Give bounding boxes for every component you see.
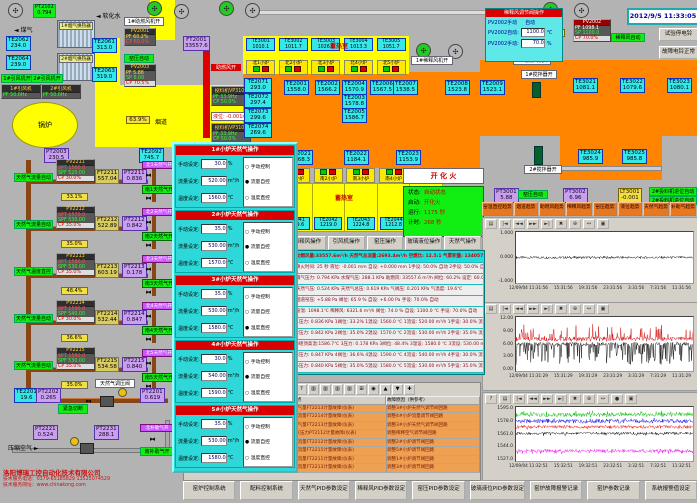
unit: % bbox=[228, 291, 233, 297]
pv2002-controller[interactable]: PV2002 PF 1098.1 SP 1100.0 CP 70.0% bbox=[573, 19, 611, 42]
emergency-cutoff-button[interactable]: 紧急切断 bbox=[58, 404, 88, 414]
operation-button[interactable]: 玻璃液位操作 bbox=[405, 236, 442, 250]
val: 985.9 bbox=[580, 156, 601, 162]
north-chamber: TE30011010.1 北1小炉 bbox=[245, 36, 277, 74]
val: 313.0 bbox=[94, 45, 115, 51]
chamber-te-indicator: TE20421219.0 bbox=[314, 217, 342, 230]
gas-loop-row: 天然气流量自动 PV2215 SPT 1580.0 SPF 530.00 CP … bbox=[0, 346, 172, 393]
nav-button[interactable]: 窑炉故障报警记录 bbox=[530, 481, 582, 500]
x-tick: 7:31:56 bbox=[650, 285, 666, 293]
te2062-indicator: TE2062234.0 bbox=[6, 36, 31, 51]
north-gas-valve-status: 北5天然气开 bbox=[142, 349, 176, 357]
unit: ℃ bbox=[228, 390, 234, 396]
nav-button[interactable]: 天然气PID参数设定 bbox=[298, 481, 350, 500]
radio-manual-control[interactable]: ○ 手动控制 bbox=[245, 358, 291, 365]
fan1-pf: PF 50.0Hz bbox=[3, 93, 27, 98]
flue-label: 烟道 bbox=[155, 117, 167, 126]
red-light bbox=[262, 66, 269, 72]
radio-flow-auto[interactable]: ○ 流量自控 bbox=[245, 308, 291, 315]
chart-toolbar-button[interactable]: ◄◄ bbox=[513, 219, 525, 229]
temp-set-label: 温度设定: bbox=[178, 195, 200, 202]
auto-sp-label: PV2002自动: bbox=[488, 29, 519, 36]
loop-controller-panel[interactable]: PV2212 SPT 1570.0 SPF 530.00 CP 35.0% bbox=[56, 206, 95, 229]
manual-set-label: 手动设定: bbox=[178, 421, 200, 428]
val: 1586.7 bbox=[344, 115, 365, 121]
radio-temp-direct[interactable]: ○ 温度直控 bbox=[245, 389, 291, 396]
chart-toolbar-button[interactable]: |◄ bbox=[499, 219, 511, 229]
trend-button[interactable]: 液位趋势 bbox=[618, 202, 642, 216]
flow-set-label: 流量设定: bbox=[178, 438, 200, 445]
fan-icon: ✣ bbox=[174, 4, 189, 19]
y-axis-ticks: 1595.01578.01561.01544.01527.0 bbox=[486, 406, 515, 462]
val: 0.842 bbox=[124, 223, 145, 229]
burner-box[interactable]: 南2小炉 bbox=[314, 168, 343, 183]
nav-button[interactable]: 稀释风PID参数设定 bbox=[355, 481, 407, 500]
red-light bbox=[395, 169, 402, 175]
manual-set-input[interactable]: 30.0 bbox=[201, 354, 227, 364]
operation-button[interactable]: 引风机操作 bbox=[328, 236, 365, 250]
te2008-indicator: TE20081523.8 bbox=[445, 80, 470, 95]
loop-controller-panel[interactable]: PV2215 SPT 1580.0 SPF 530.00 CP 35.0% bbox=[56, 347, 95, 370]
radio-manual-control[interactable]: ○ 手动控制 bbox=[245, 293, 291, 300]
log-toolbar-button[interactable]: ▼ bbox=[392, 384, 403, 395]
company-website: 技术服务网址：www.chinakong.com bbox=[3, 483, 143, 489]
south-aux-gas-valve-status: 南补助气开 bbox=[140, 447, 174, 456]
trend-button[interactable]: 窑压趋势 bbox=[593, 202, 617, 216]
val: 1081.1 bbox=[575, 85, 596, 91]
unit: % bbox=[547, 41, 552, 47]
radio-manual-control[interactable]: ○ 手动控制 bbox=[245, 423, 291, 430]
val: 1558.0 bbox=[286, 87, 307, 93]
chamber-te-indicator: TE30011010.1 bbox=[246, 38, 275, 51]
unit: m³/h bbox=[228, 308, 240, 314]
burner-status-lights bbox=[345, 66, 372, 74]
valve-icon[interactable]: ▸◂ bbox=[146, 266, 149, 273]
furnace-working-end bbox=[480, 60, 697, 136]
fan1-open-status: 1#引风机开 bbox=[1, 74, 33, 83]
chart-toolbar-button[interactable]: ►► bbox=[527, 304, 539, 314]
flow-set-input[interactable]: 530.00 bbox=[201, 436, 227, 446]
chart-toolbar-button[interactable]: ►| bbox=[541, 219, 553, 229]
te2074-indicator: TE2074269.6 bbox=[244, 123, 272, 138]
radio-icon: ● bbox=[245, 180, 249, 185]
x-axis-ticks: 12/09/04 11:31:5615:31:5619:31:5623:31:5… bbox=[509, 285, 691, 293]
popup-section-body: 手动设定:35.0% 流量设定:530.00m³/h 温度设定:1580.0℃ … bbox=[176, 415, 294, 467]
valve-icon[interactable]: ▸◂ bbox=[150, 436, 153, 443]
unit: % bbox=[228, 161, 233, 167]
temp-set-input[interactable]: 1560.0 bbox=[201, 193, 227, 203]
val: 603.19 bbox=[97, 270, 117, 276]
chart-toolbar-button[interactable]: ✖ bbox=[555, 219, 567, 229]
val: -0.001 bbox=[620, 195, 640, 201]
chart-toolbar-button[interactable]: ↔ bbox=[583, 219, 595, 229]
y-tick: 0.00 bbox=[486, 367, 513, 372]
manual-set-label: 手动设定: bbox=[178, 161, 200, 168]
burner-label: 南2小炉 bbox=[315, 177, 342, 182]
loop-valve-position: 36.6% bbox=[61, 334, 88, 342]
trend-button[interactable]: 助燃风趋势 bbox=[539, 202, 565, 216]
pv2003-controller[interactable]: PV2003PF 5.88SP 6.00CP 70.5% bbox=[124, 64, 156, 87]
val: 19.6 bbox=[16, 395, 37, 401]
south-regenerator-label: 蓄热室 bbox=[335, 193, 353, 202]
flue-damper-position: 63.9% bbox=[126, 116, 150, 124]
status-value: 1175 秒 bbox=[424, 208, 445, 218]
val: 234.0 bbox=[8, 43, 29, 49]
burner-box[interactable]: 北4小炉 bbox=[344, 60, 373, 75]
burner-status-lights bbox=[247, 66, 274, 74]
radio-manual-control[interactable]: ○ 手动控制 bbox=[245, 228, 291, 235]
radio-icon: ○ bbox=[245, 230, 249, 235]
flow-set-input[interactable]: 520.00 bbox=[201, 176, 227, 186]
gas-operation-popup: 1#小炉天然气操作 手动设定:30.0% 流量设定:520.00m³/h 温度设… bbox=[172, 142, 298, 473]
boiler-label: 锅炉 bbox=[38, 120, 52, 130]
row-reason: 调整稀释空气调节阀回路 bbox=[387, 430, 480, 439]
pt2221-indicator: PT22210.524 bbox=[33, 425, 58, 440]
gas-loop-row: 天然气温度直控 PV2213 SPT 1580.0 SPF 530.00 CP … bbox=[0, 252, 172, 299]
x-axis-ticks: 12/09/04 11:31:2915:31:2919:31:2923:31:2… bbox=[509, 373, 691, 381]
temp-set-input[interactable]: 1590.0 bbox=[201, 388, 227, 398]
val: 1079.6 bbox=[622, 85, 643, 91]
nav-button[interactable]: 配料控制系统 bbox=[240, 481, 292, 500]
val: 532.44 bbox=[97, 317, 117, 323]
radio-icon: ○ bbox=[245, 425, 249, 430]
pt2202-indicator: PT22020.265 bbox=[36, 388, 61, 403]
chart-toolbar-button[interactable]: ▣ bbox=[625, 394, 637, 404]
trend-button[interactable]: 窑温直控趋势 bbox=[482, 202, 513, 216]
comb-air-open-label: 助燃风开 bbox=[211, 64, 241, 71]
radio-icon: ○ bbox=[245, 165, 249, 170]
red-light bbox=[327, 66, 334, 72]
x-tick: 23:31:56 bbox=[603, 285, 622, 293]
trend-button[interactable]: 稀释风趋势 bbox=[566, 202, 592, 216]
val: 1567.5 bbox=[372, 87, 393, 93]
green-light bbox=[285, 66, 292, 72]
chart-toolbar-button[interactable]: ►► bbox=[527, 219, 539, 229]
green-light bbox=[318, 66, 325, 72]
loop-flow-indicator: FT2214532.44 bbox=[95, 310, 119, 325]
pt3002-indicator: PT30026.96 bbox=[563, 188, 588, 203]
loop-auto-mode-label: 天然气流量自动 bbox=[14, 220, 53, 229]
val: 299.6 bbox=[246, 115, 270, 121]
scada-furnace-screen: 锅炉 ✣ ✣ ✣ ✣ ✣ ✣ ✣ ✣ ✣ ◄ 煤气 PT21020.794 ◄ … bbox=[0, 0, 697, 503]
manual-set-input[interactable]: 35.0 bbox=[201, 289, 227, 299]
chart-toolbar-button[interactable]: ⊕ bbox=[583, 394, 595, 404]
manual-set-input[interactable]: 30.0 bbox=[201, 159, 227, 169]
chart-toolbar-button[interactable]: ⊕ bbox=[569, 219, 581, 229]
log-toolbar-button[interactable]: ▥ bbox=[332, 384, 343, 395]
radio-icon: ○ bbox=[245, 391, 249, 396]
log-toolbar-button[interactable]: ✚ bbox=[404, 384, 415, 395]
temp-set-input[interactable]: 1570.0 bbox=[201, 258, 227, 268]
col-fault-header[interactable]: 故障点 bbox=[287, 396, 386, 405]
control-mode-radio-group: ○ 手动控制 ● 流量自控 ○ 温度直控 bbox=[243, 157, 293, 207]
company-name: 洛阳博瑞工控自动化技术有限公司 bbox=[3, 469, 143, 477]
trend-buttons-row: 窑温直控趋势烟道趋势助燃风趋势稀释风趋势窑压趋势液位趋势天然气趋势补助气趋势 bbox=[482, 202, 696, 216]
burner-box[interactable]: 北2小炉 bbox=[279, 60, 308, 75]
te2004-indicator: TE20041570.9 bbox=[342, 80, 367, 95]
chart-toolbar-button[interactable]: ►► bbox=[541, 394, 553, 404]
nav-button[interactable]: 窑炉控制系统 bbox=[183, 481, 235, 500]
flow-set-label: 流量设定: bbox=[178, 308, 200, 315]
te2001-indicator: TE20011558.0 bbox=[284, 80, 309, 95]
burner-box[interactable]: 北3小炉 bbox=[311, 60, 340, 75]
dilution-auto-label: 稀释风自动 bbox=[611, 33, 645, 42]
dilution-fan1-open-label: 1#稀释风机开 bbox=[411, 56, 453, 65]
company-info: 洛阳博瑞工控自动化技术有限公司 技术服务电话：0379-65185829 135… bbox=[3, 469, 143, 489]
te2007-indicator: TE20071538.5 bbox=[393, 80, 418, 95]
fan2-name: 2#引风机 bbox=[42, 85, 80, 93]
chart-toolbar-button[interactable]: ▤ bbox=[485, 304, 497, 314]
val: 1523.8 bbox=[447, 87, 468, 93]
valve-icon[interactable]: ▸◂ bbox=[146, 195, 149, 202]
row-reason: 调整5#小炉调节阀回路 bbox=[387, 447, 480, 456]
manual-sp-input[interactable]: 70.0 bbox=[521, 39, 545, 48]
north-gas-valve-status: 北4天然气开 bbox=[142, 302, 176, 310]
nav-button[interactable]: 玻璃液位PID参数设定 bbox=[470, 481, 525, 500]
radio-icon: ● bbox=[245, 440, 249, 445]
green-light bbox=[253, 66, 260, 72]
green-light bbox=[386, 169, 393, 175]
trend-button[interactable]: 烟道趋势 bbox=[514, 202, 538, 216]
x-tick: 3:32:51 bbox=[628, 463, 644, 471]
burner-box[interactable]: 南3小炉 bbox=[346, 168, 375, 183]
temp-set-input[interactable]: 1580.0 bbox=[201, 453, 227, 463]
status-key: 启动: bbox=[408, 198, 421, 208]
chart-toolbar-button[interactable]: ►| bbox=[555, 394, 567, 404]
loop-valve-position: 35.0% bbox=[61, 381, 88, 389]
x-tick: 7:31:29 bbox=[650, 373, 666, 381]
kiln-pressure-auto-label2: 窑压自动 bbox=[518, 190, 548, 199]
te2061-indicator: TE2061313.0 bbox=[92, 38, 117, 53]
fan2-drive-panel[interactable]: 2#引风机PF 50.0Hz bbox=[41, 84, 81, 99]
chamber-block: TE20421219.0 bbox=[312, 183, 346, 232]
fault-bell-button[interactable]: 故障电铃正常 bbox=[659, 46, 697, 59]
burner-status-lights bbox=[347, 169, 374, 177]
nav-button[interactable]: 窑炉参数记录 bbox=[587, 481, 639, 500]
chart-toolbar-button[interactable]: ● bbox=[611, 394, 623, 404]
log-toolbar-button[interactable]: ⊞ bbox=[356, 384, 367, 395]
loop-auto-mode-label: 天然气温度直控 bbox=[14, 267, 53, 276]
burner-status-lights bbox=[312, 66, 339, 74]
fan-icon: ✣ bbox=[245, 3, 260, 18]
chart-toolbar-button[interactable]: ↔ bbox=[583, 304, 595, 314]
radio-icon: ○ bbox=[245, 295, 249, 300]
pv2001-controller[interactable]: PV2001PF 60.2%CP 60.0% bbox=[124, 28, 156, 46]
log-toolbar-button[interactable]: ▥ bbox=[344, 384, 355, 395]
fan-icon: ✣ bbox=[8, 3, 23, 18]
chart-toolbar-button[interactable]: ▤ bbox=[485, 219, 497, 229]
chart-toolbar-button[interactable]: ◄◄ bbox=[527, 394, 539, 404]
chart-toolbar-button[interactable]: ▣ bbox=[597, 304, 609, 314]
loop-controller-panel[interactable]: PV2214 SPT 1590.0 SPF 540.00 CP 30.0% bbox=[56, 300, 95, 323]
ignition-mode-box: 开 化 火 bbox=[403, 168, 484, 184]
radio-temp-direct[interactable]: ○ 温度直控 bbox=[245, 194, 291, 201]
loop-auto-mode-label: 天然气流量自动 bbox=[14, 173, 53, 182]
auto-sp-input[interactable]: 1100.0 bbox=[521, 28, 545, 37]
status-key: 运行: bbox=[408, 208, 421, 218]
y-axis-ticks: 12.009.006.003.000.00 bbox=[486, 316, 515, 372]
val: 319.0 bbox=[94, 74, 115, 80]
col-reason-header[interactable]: 故障原因（供参考） bbox=[386, 396, 480, 405]
red-light bbox=[294, 66, 301, 72]
te2022-indicator: TE20221184.1 bbox=[344, 150, 369, 165]
control-mode-radio-group: ○ 手动控制 ● 流量自控 ○ 温度直控 bbox=[243, 222, 293, 272]
radio-temp-direct[interactable]: ○ 温度直控 bbox=[245, 259, 291, 266]
valve-icon[interactable]: ▸◂ bbox=[146, 242, 149, 249]
chart-toolbar-button[interactable]: ▣ bbox=[597, 219, 609, 229]
loop-controller-panel[interactable]: PV2211 SPT 1560.0 SPF 520.00 CP 30.0% bbox=[56, 159, 95, 182]
valve-icon[interactable]: ▸◂ bbox=[86, 398, 89, 405]
hx1-label: 1#烟气换热器 bbox=[59, 22, 93, 30]
te2063-indicator: TE2063319.0 bbox=[92, 67, 117, 82]
radio-flow-auto[interactable]: ● 流量自控 bbox=[245, 373, 291, 380]
chart-toolbar-button[interactable]: ⊕ bbox=[569, 304, 581, 314]
radio-flow-auto[interactable]: ● 流量自控 bbox=[245, 243, 291, 250]
chart-toolbar-button[interactable]: ▤ bbox=[499, 394, 511, 404]
bottom-nav-buttons: 窑炉控制系统配料控制系统天然气PID参数设定稀释风PID参数设定窑压PID参数设… bbox=[183, 481, 697, 500]
y-tick: 1544.0 bbox=[486, 444, 513, 449]
unit: m³/h bbox=[228, 438, 240, 444]
te3025-indicator: TE3025985.8 bbox=[622, 149, 647, 164]
north-gas-valve-status: 北3天然气开 bbox=[142, 255, 176, 263]
burner-label: 南3小炉 bbox=[347, 177, 374, 182]
radio-flow-auto[interactable]: ● 流量自控 bbox=[245, 438, 291, 445]
manual-set-input[interactable]: 35.0 bbox=[201, 419, 227, 429]
y-tick: 1595.0 bbox=[486, 406, 513, 411]
radio-flow-auto[interactable]: ● 流量自控 bbox=[245, 178, 291, 185]
popup-section-body: 手动设定:30.0% 流量设定:540.00m³/h 温度设定:1590.0℃ … bbox=[176, 350, 294, 402]
flow-set-input[interactable]: 530.00 bbox=[201, 241, 227, 251]
test-bell-button[interactable]: 试验停电铃 bbox=[659, 28, 697, 41]
y-tick: 6.00 bbox=[486, 342, 513, 347]
y-tick: 9.00 bbox=[486, 329, 513, 334]
te3022-indicator: TE30221079.6 bbox=[620, 78, 645, 93]
burner-box[interactable]: 北1小炉 bbox=[246, 60, 275, 75]
pv2002-manual-label[interactable]: PV2002手动 bbox=[488, 19, 517, 26]
nav-button[interactable]: 窑压PID参数设定 bbox=[412, 481, 464, 500]
valve-icon[interactable]: ▸◂ bbox=[146, 289, 149, 296]
red-light bbox=[362, 169, 369, 175]
chart-toolbar-button[interactable]: ✖ bbox=[569, 394, 581, 404]
parameter-row: 煤气压力: 0.794 KPa 水煤气压: 288.1 KPa 助燃风: 335… bbox=[295, 274, 483, 285]
parameter-row: 换火时间: 25 秒 液位: -0.001 mm 自设: +0.000 mm 1… bbox=[295, 263, 483, 274]
chart-toolbar-button[interactable]: ◄◄ bbox=[513, 304, 525, 314]
val: 1013.3 bbox=[345, 45, 372, 51]
boiler-ellipse: 锅炉 bbox=[12, 102, 78, 148]
x-tick: 12/09/04 11:32:51 bbox=[509, 463, 548, 471]
log-toolbar-button[interactable]: ▥ bbox=[320, 384, 331, 395]
chart-toolbar-button[interactable]: |◄ bbox=[513, 394, 525, 404]
x-tick: 23:32:51 bbox=[603, 463, 622, 471]
flow-set-input[interactable]: 530.00 bbox=[201, 306, 227, 316]
popup-section-title: 3#小炉天然气操作 bbox=[176, 276, 294, 285]
log-toolbar-button[interactable]: ◉ bbox=[368, 384, 379, 395]
valve-icon[interactable]: ▸◂ bbox=[146, 360, 149, 367]
chart-toolbar-button[interactable]: ↔ bbox=[597, 394, 609, 404]
north-aux-gas-valve-status: 北补助气开 bbox=[140, 424, 174, 432]
radio-temp-direct[interactable]: ● 温度直控 bbox=[245, 324, 291, 331]
flow-set-input[interactable]: 540.00 bbox=[201, 371, 227, 381]
gas-regulator-label: 天然气调压阀 bbox=[95, 379, 135, 388]
log-toolbar-button[interactable]: ▲ bbox=[380, 384, 391, 395]
te2005-indicator: TE20051586.7 bbox=[342, 108, 367, 123]
control-mode-radio-group: ○ 手动控制 ● 流量自控 ○ 温度直控 bbox=[243, 352, 293, 402]
pv2002-auto-mode[interactable]: 自动 bbox=[525, 19, 535, 26]
fan1-drive-panel[interactable]: 1#引风机PF 50.0Hz bbox=[1, 84, 41, 99]
burner-box[interactable]: 北5小炉 bbox=[377, 60, 406, 75]
gas-valve-pipe bbox=[152, 166, 156, 202]
chart-toolbar-button[interactable]: ►| bbox=[541, 304, 553, 314]
val: 0.836 bbox=[124, 176, 145, 182]
chart-toolbar-button[interactable]: ? bbox=[485, 394, 497, 404]
val: 1538.5 bbox=[395, 87, 416, 93]
pt2201-indicator: PT22010.619 bbox=[140, 388, 165, 403]
valve-icon[interactable]: ▸◂ bbox=[146, 313, 149, 320]
dilution-valve-panel: 稀释风调节阀操作 PV2002手动自动 PV2002自动:1100.0℃ PV2… bbox=[485, 8, 563, 62]
heat-exchanger-1: 1#烟气换热器 bbox=[57, 20, 95, 48]
y-tick: 1578.0 bbox=[486, 419, 513, 424]
valve-icon[interactable]: ▸◂ bbox=[146, 172, 149, 179]
gas-loop-row: 天然气流量自动 PV2212 SPT 1570.0 SPF 530.00 CP … bbox=[0, 205, 172, 252]
val: 1011.7 bbox=[280, 45, 307, 51]
radio-icon: ● bbox=[245, 375, 249, 380]
chamber-te-indicator: TE30041013.3 bbox=[344, 38, 373, 51]
operation-button[interactable]: 天然气操作 bbox=[444, 236, 481, 250]
gas-valve-pipe bbox=[152, 307, 156, 343]
x-tick: 12/09/04 11:31:56 bbox=[509, 285, 548, 293]
operation-button[interactable]: 窑压操作 bbox=[367, 236, 404, 250]
radio-icon: ○ bbox=[245, 456, 249, 461]
parameter-row: 4压力: 0.847 KPa 4阀位: 36.6% 4温设: 1590.0 ℃ … bbox=[295, 351, 483, 362]
manual-set-input[interactable]: 35.0 bbox=[201, 224, 227, 234]
green-light bbox=[383, 66, 390, 72]
valve-icon[interactable]: ▸◂ bbox=[146, 219, 149, 226]
val: 1010.1 bbox=[247, 45, 274, 51]
pressure-trend-chart: ▤|◄◄◄►►►|✖⊕↔▣ 12.009.006.003.000.00 12/0… bbox=[482, 302, 697, 391]
loop-valve-position: 35.0% bbox=[61, 240, 88, 248]
val: 1224.8 bbox=[348, 223, 374, 229]
trend-button[interactable]: 补助气趋势 bbox=[670, 202, 696, 216]
pv2002-cp: CP 70.0% bbox=[574, 36, 610, 41]
south-gas-valve-status: 南5天然气开 bbox=[142, 373, 176, 382]
status-key: 状态: bbox=[408, 188, 421, 198]
temp-set-label: 温度设定: bbox=[178, 260, 200, 267]
ft2001-indicator: FT200133557.6 bbox=[183, 36, 210, 51]
te2006-indicator: TE20061567.5 bbox=[370, 80, 395, 95]
radio-manual-control[interactable]: ○ 手动控制 bbox=[245, 163, 291, 170]
log-toolbar-button[interactable]: ▥ bbox=[308, 384, 319, 395]
te2072-indicator: TE2072297.4 bbox=[244, 93, 272, 108]
trend-button[interactable]: 天然气趋势 bbox=[643, 202, 669, 216]
temp-set-input[interactable]: 1580.0 bbox=[201, 323, 227, 333]
val: 1219.0 bbox=[315, 223, 341, 229]
chart-toolbar-button[interactable]: |◄ bbox=[499, 304, 511, 314]
val: 1153.9 bbox=[398, 157, 419, 163]
popup-section-body: 手动设定:30.0% 流量设定:520.00m³/h 温度设定:1560.0℃ … bbox=[176, 155, 294, 207]
loop-controller-panel[interactable]: PV2213 SPT 1580.0 SPF 530.00 CP 35.0% bbox=[56, 253, 95, 276]
row-reason: 调整3#小炉天然气调节阀回路 bbox=[387, 422, 480, 431]
unit: % bbox=[228, 421, 233, 427]
status-row: 计时:268 秒 bbox=[405, 218, 482, 228]
north-gas-valve-status: 北1天然气开 bbox=[142, 161, 176, 169]
valve-icon[interactable]: ▸◂ bbox=[146, 336, 149, 343]
status-row: 启动:开化火 bbox=[405, 198, 482, 208]
radio-temp-direct[interactable]: ○ 温度直控 bbox=[245, 454, 291, 461]
popup-section-title: 1#小炉天然气操作 bbox=[176, 146, 294, 155]
chart-toolbar-button[interactable]: ✖ bbox=[555, 304, 567, 314]
nav-button[interactable]: 系统报警值设定 bbox=[645, 481, 697, 500]
datetime-display: 2012/9/5 11:33:05 bbox=[627, 8, 697, 25]
